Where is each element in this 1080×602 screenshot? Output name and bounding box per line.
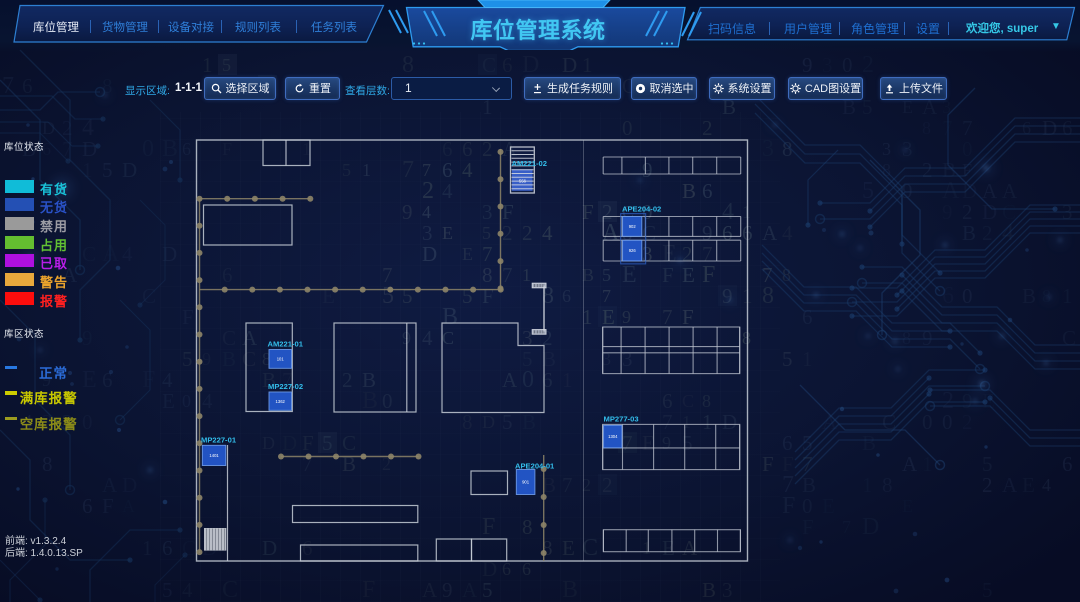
svg-text:1362: 1362 [276, 399, 286, 404]
svg-text:556: 556 [519, 178, 527, 183]
svg-text:MP227-02: MP227-02 [268, 382, 303, 391]
svg-text:902: 902 [629, 224, 637, 229]
svg-text:APE204-01: APE204-01 [515, 461, 555, 470]
svg-text:AM221-02: AM221-02 [512, 159, 547, 168]
svg-text:926: 926 [629, 248, 637, 253]
svg-text:901: 901 [522, 480, 530, 485]
svg-text:1304: 1304 [608, 434, 618, 439]
svg-text:AM221-01: AM221-01 [268, 340, 304, 349]
svg-text:APE204-02: APE204-02 [622, 205, 661, 214]
svg-text:MP277-03: MP277-03 [604, 415, 639, 424]
svg-text:MP227-01: MP227-01 [201, 435, 237, 444]
svg-text:101: 101 [277, 357, 285, 362]
svg-text:1401: 1401 [209, 453, 219, 458]
